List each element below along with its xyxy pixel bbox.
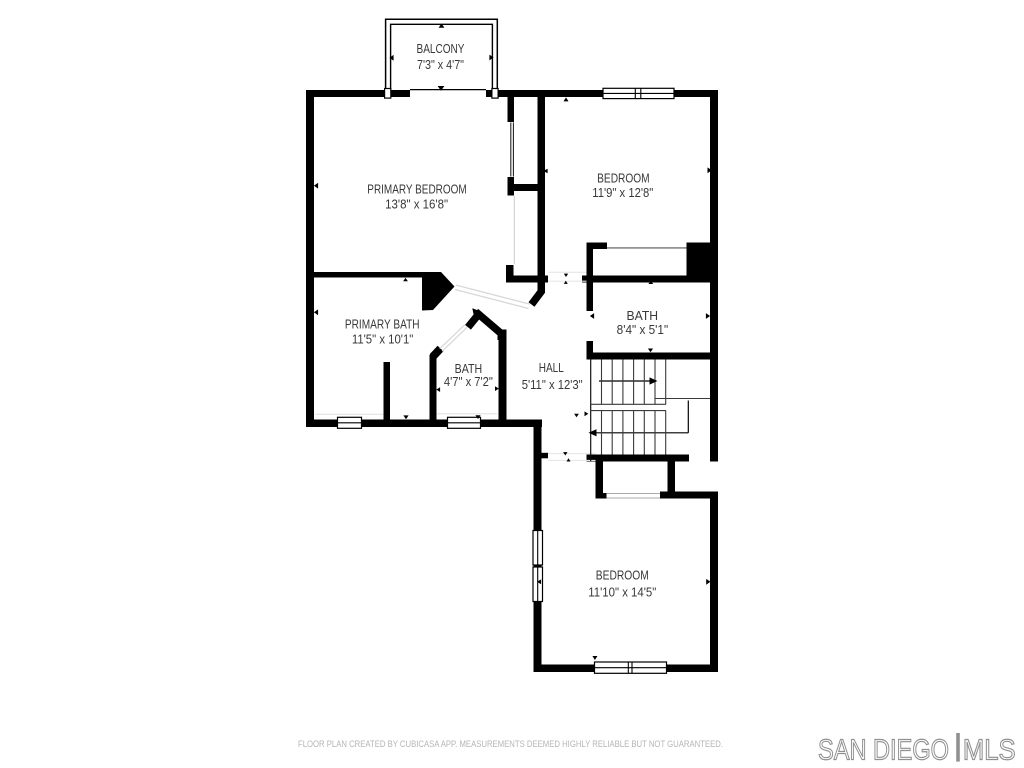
svg-text:SAN DIEGO: SAN DIEGO xyxy=(818,735,949,767)
svg-text:PRIMARY BATH: PRIMARY BATH xyxy=(345,316,420,331)
svg-text:HALL: HALL xyxy=(539,360,564,375)
svg-text:PRIMARY BEDROOM: PRIMARY BEDROOM xyxy=(367,181,466,196)
svg-text:11'5" x 10'1": 11'5" x 10'1" xyxy=(352,331,414,346)
svg-text:11'9" x 12'8": 11'9" x 12'8" xyxy=(592,185,653,200)
svg-text:BEDROOM: BEDROOM xyxy=(597,171,650,186)
svg-text:5'11" x 12'3": 5'11" x 12'3" xyxy=(522,377,583,392)
svg-text:MLS: MLS xyxy=(963,735,1016,767)
svg-text:BEDROOM: BEDROOM xyxy=(596,568,649,583)
svg-text:13'8" x 16'8": 13'8" x 16'8" xyxy=(385,196,448,211)
svg-text:BALCONY: BALCONY xyxy=(417,41,465,56)
svg-text:11'10" x 14'5": 11'10" x 14'5" xyxy=(588,585,656,600)
svg-text:4'7" x 7'2": 4'7" x 7'2" xyxy=(444,374,493,389)
svg-text:8'4" x 5'1": 8'4" x 5'1" xyxy=(617,322,669,337)
svg-text:FLOOR PLAN CREATED BY CUBICASA: FLOOR PLAN CREATED BY CUBICASA APP. MEAS… xyxy=(298,739,723,749)
svg-text:7'3" x 4'7": 7'3" x 4'7" xyxy=(417,57,464,72)
svg-text:BATH: BATH xyxy=(627,308,659,323)
